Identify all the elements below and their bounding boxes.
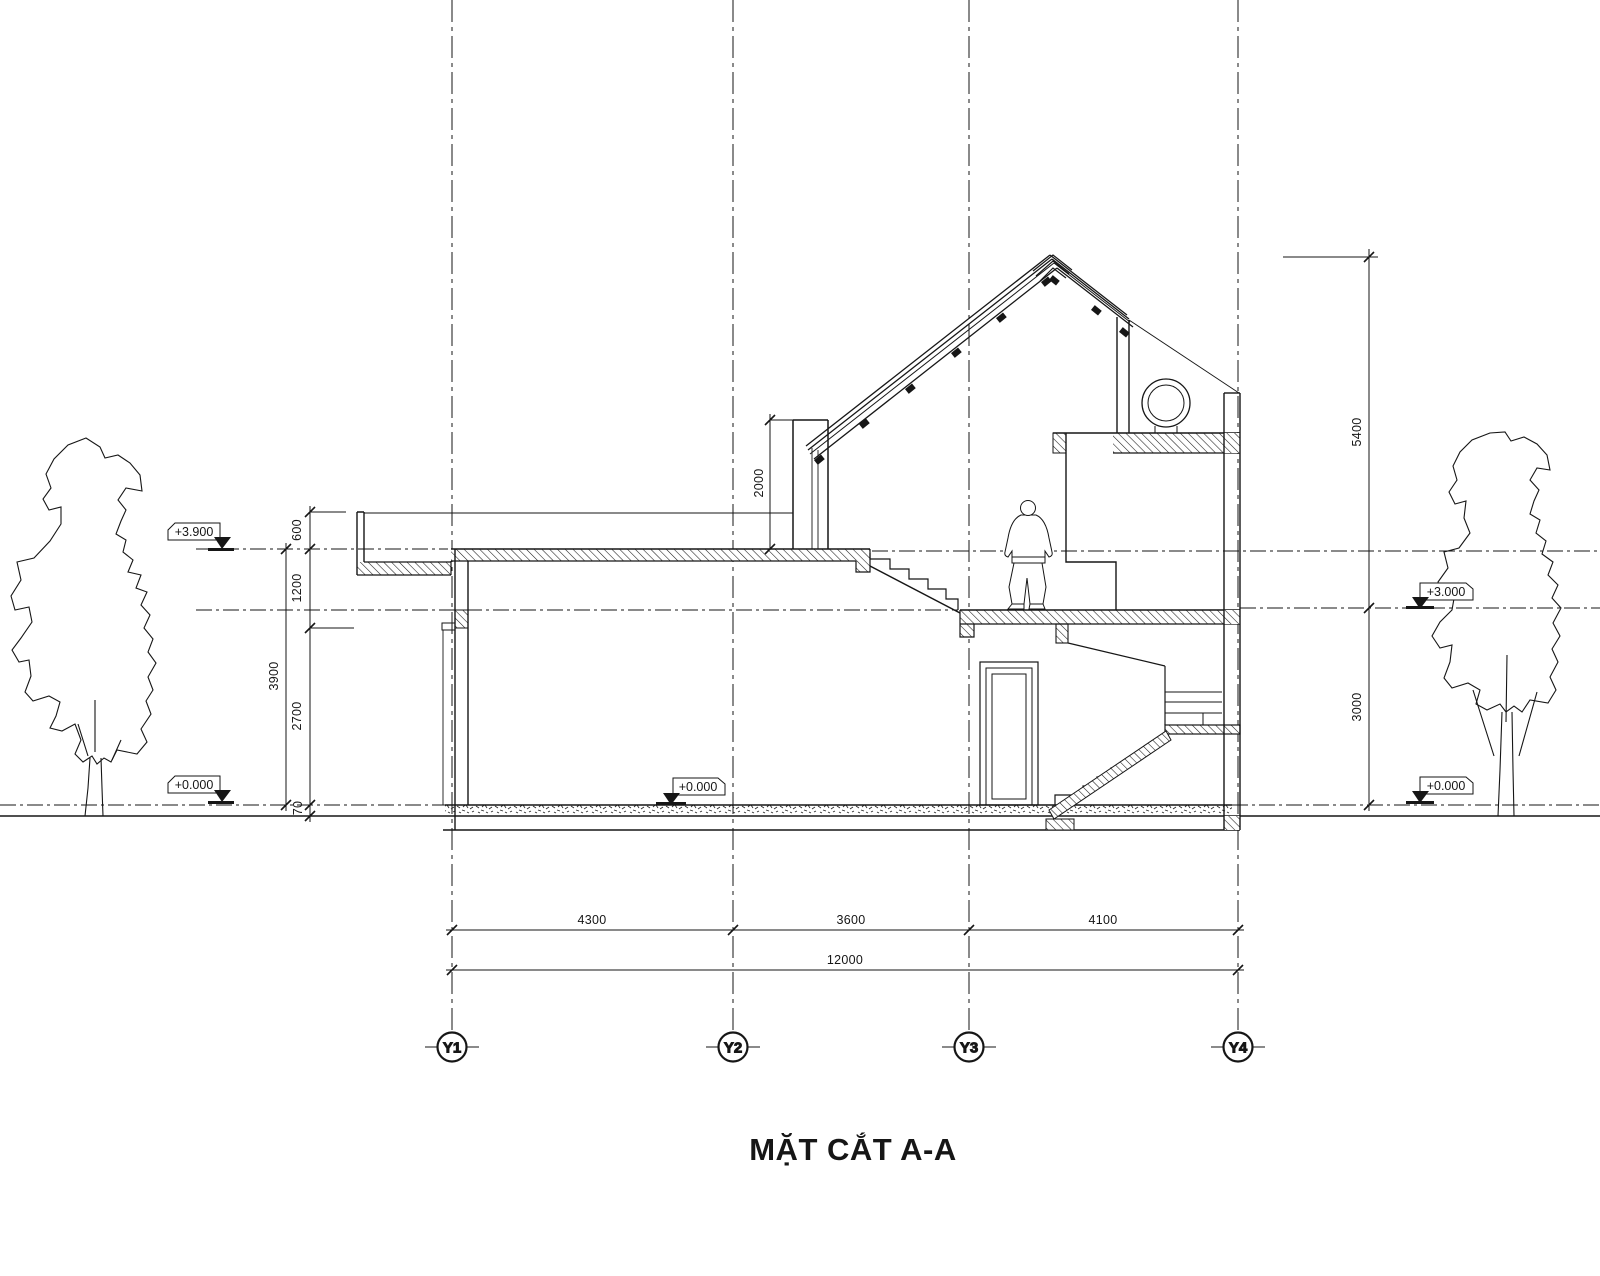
stairs-lower (1046, 643, 1240, 830)
level-flag-left-ground: +0.000 (168, 776, 234, 804)
dim-label-3000: 3000 (1350, 692, 1364, 721)
grid-bubble-y1: Y1 (425, 1033, 479, 1062)
ground-gravel-band (445, 805, 1232, 816)
canopy-slab-hatch (357, 562, 451, 575)
vent-circle-inner (1148, 385, 1184, 421)
grid-bubble-y2: Y2 (706, 1033, 760, 1062)
level-value-interior-ground: +0.000 (679, 780, 718, 794)
dim-label-2000: 2000 (752, 468, 766, 497)
slab-end-block-hatch (856, 549, 870, 572)
left-wall-hatch (455, 610, 468, 628)
dim-label-total: 12000 (827, 953, 863, 967)
stair-footing (1046, 819, 1074, 830)
stairs-upper (870, 553, 960, 613)
attic-level (1053, 379, 1240, 610)
svg-text:Y2: Y2 (724, 1040, 742, 1057)
landing-hatch (1165, 725, 1240, 734)
dim-label-1200: 1200 (290, 573, 304, 602)
dimension-clerestory (765, 414, 793, 554)
slab-3000-end-hatch (960, 624, 974, 637)
attic-slab-hatch (1113, 433, 1240, 453)
purlins (814, 275, 1130, 465)
window-sill (442, 623, 455, 630)
stair-ceiling-slope (1068, 643, 1165, 666)
level-value-left-upper: +3.900 (175, 525, 214, 539)
dimensions-bottom (446, 925, 1244, 975)
svg-text:Y4: Y4 (1229, 1040, 1248, 1057)
dim-label-y2-y3: 3600 (836, 913, 865, 927)
dim-label-2700: 2700 (290, 701, 304, 730)
clerestory-wall (793, 420, 828, 549)
level-triangle (214, 790, 231, 802)
svg-text:Y3: Y3 (960, 1040, 978, 1057)
vent-circle-outer (1142, 379, 1190, 427)
slab-3000 (960, 610, 1240, 643)
tree-right (1432, 432, 1561, 816)
slab-3000-hatch (960, 610, 1240, 624)
drawing-title: MẶT CẮT A-A (749, 1131, 957, 1167)
person-head (1021, 501, 1036, 516)
attic-wall-stub-hatch (1053, 433, 1066, 453)
right-rafter (1057, 268, 1133, 327)
dimensions-right (1283, 249, 1378, 811)
far-roof-edge (1129, 320, 1239, 393)
level-flag-right-ground: +0.000 (1406, 777, 1473, 804)
svg-text:Y1: Y1 (443, 1040, 461, 1057)
dim-ticks (447, 925, 1243, 975)
beam-hatch (1056, 624, 1068, 643)
ground (0, 805, 1600, 830)
level-value-right-upper: +3.000 (1427, 585, 1466, 599)
grid-bubble-y4: Y4 (1211, 1033, 1265, 1062)
left-wall (442, 549, 468, 830)
floor-slab-3900-hatch (451, 549, 870, 561)
level-lines (0, 549, 1600, 805)
grid-bubble-y3: Y3 (942, 1033, 996, 1062)
tree-left (11, 438, 156, 816)
person-legs (1009, 563, 1046, 604)
level-value-left-ground: +0.000 (175, 778, 214, 792)
tree-right-canopy (1432, 432, 1561, 712)
level-flag-interior-ground: +0.000 (656, 778, 725, 805)
grid-lines (452, 0, 1238, 1032)
dimensions-left (281, 506, 354, 822)
dim-label-5400: 5400 (1350, 417, 1364, 446)
dim-label-y3-y4: 4100 (1088, 913, 1117, 927)
person-torso (1005, 515, 1052, 563)
dim-label-70: 70 (291, 801, 305, 816)
level-triangle (214, 537, 231, 549)
grid-bubbles: Y1 Y2 Y3 Y4 (425, 1033, 1265, 1062)
person-feet (1008, 604, 1045, 609)
landing-step-block (1203, 713, 1222, 725)
dim-label-3900: 3900 (267, 661, 281, 690)
left-rafter (814, 268, 1057, 459)
tree-left-canopy (11, 438, 156, 764)
level-flag-right-upper: +3.000 (1406, 583, 1473, 609)
section-drawing-page: 4300 3600 4100 12000 600 1200 3900 2700 … (0, 0, 1600, 1276)
tree-right-trunk (1473, 655, 1537, 816)
tree-left-trunk (78, 700, 121, 816)
upper-room-wall (1066, 433, 1116, 610)
upper-stair-steps (870, 553, 958, 610)
level-flag-left-upper: +3.900 (168, 523, 234, 551)
section-drawing-canvas: 4300 3600 4100 12000 600 1200 3900 2700 … (0, 0, 1600, 1276)
person-figure (1005, 501, 1052, 610)
dim-label-600: 600 (290, 519, 304, 541)
interior-door (980, 662, 1038, 805)
dim-label-y1-y2: 4300 (577, 913, 606, 927)
level-value-right-ground: +0.000 (1427, 779, 1466, 793)
